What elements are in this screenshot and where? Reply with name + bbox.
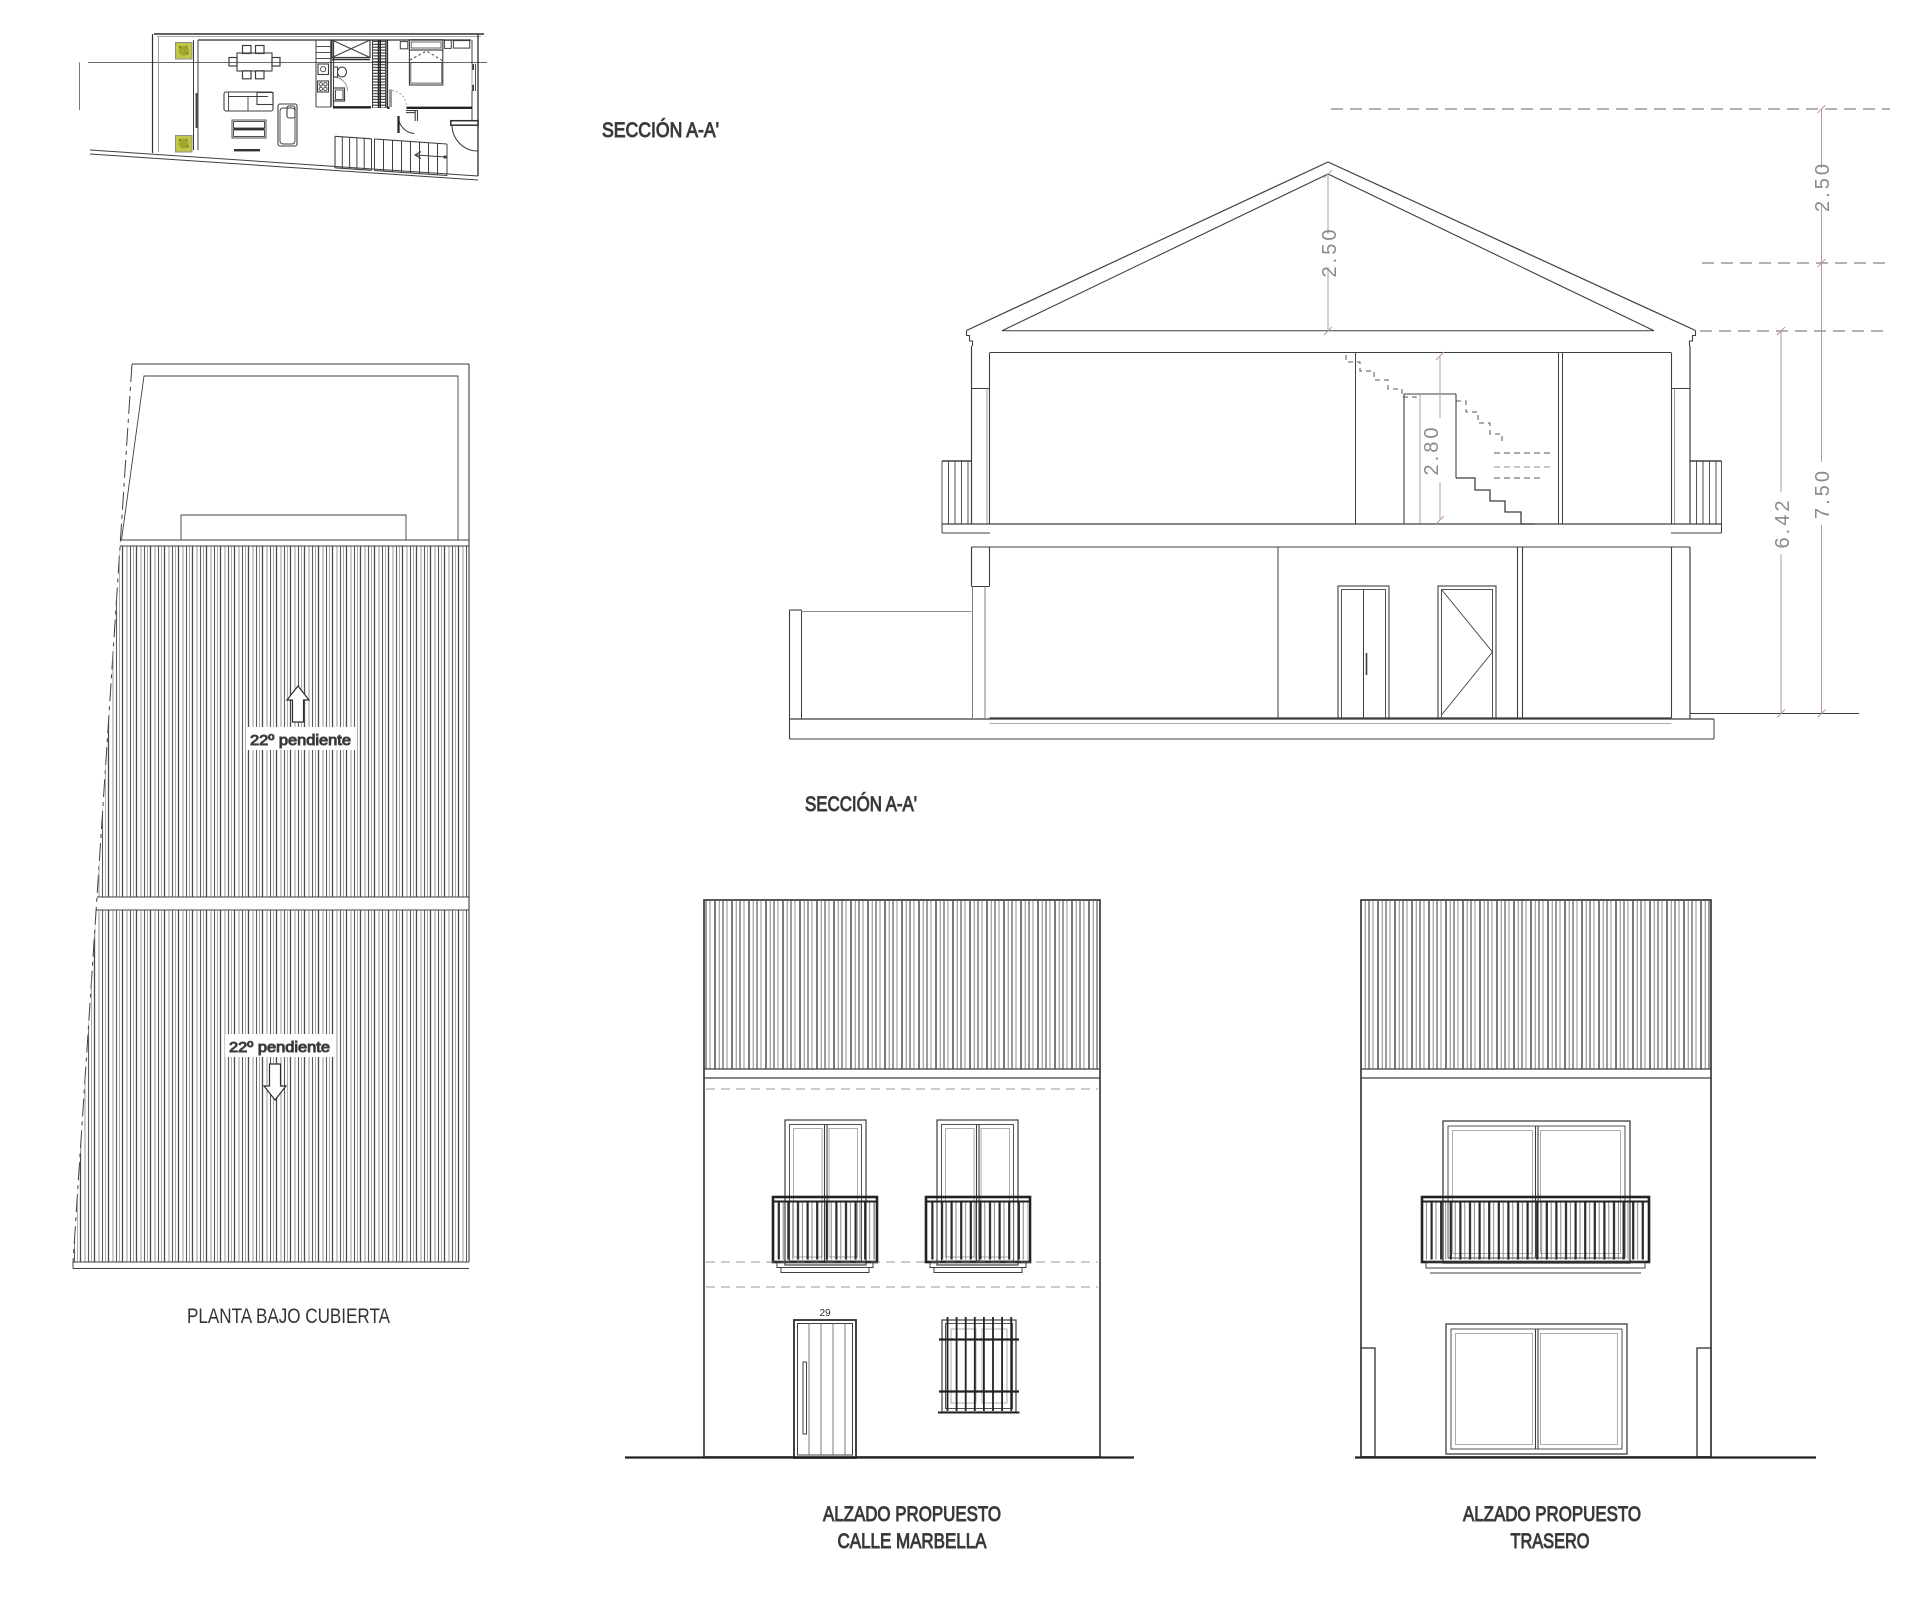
svg-text:2.80: 2.80	[1421, 425, 1443, 476]
svg-text:2.50: 2.50	[1319, 227, 1341, 278]
svg-text:SECCIÓN A-A': SECCIÓN A-A'	[602, 119, 719, 142]
svg-text:2.50: 2.50	[1812, 161, 1834, 212]
svg-text:22º pendiente: 22º pendiente	[250, 732, 351, 749]
svg-text:ALZADO PROPUESTO: ALZADO PROPUESTO	[1463, 1503, 1641, 1526]
svg-text:CALLE MARBELLA: CALLE MARBELLA	[838, 1530, 987, 1553]
svg-text:SECCIÓN A-A': SECCIÓN A-A'	[805, 793, 917, 816]
svg-text:ALZADO PROPUESTO: ALZADO PROPUESTO	[823, 1503, 1001, 1526]
svg-text:22º pendiente: 22º pendiente	[229, 1039, 330, 1056]
svg-text:7.50: 7.50	[1812, 468, 1834, 519]
svg-text:6.42: 6.42	[1772, 498, 1794, 549]
svg-text:TRASERO: TRASERO	[1511, 1530, 1590, 1553]
svg-text:29: 29	[819, 1308, 831, 1319]
svg-text:PLANTA BAJO CUBIERTA: PLANTA BAJO CUBIERTA	[187, 1305, 390, 1328]
